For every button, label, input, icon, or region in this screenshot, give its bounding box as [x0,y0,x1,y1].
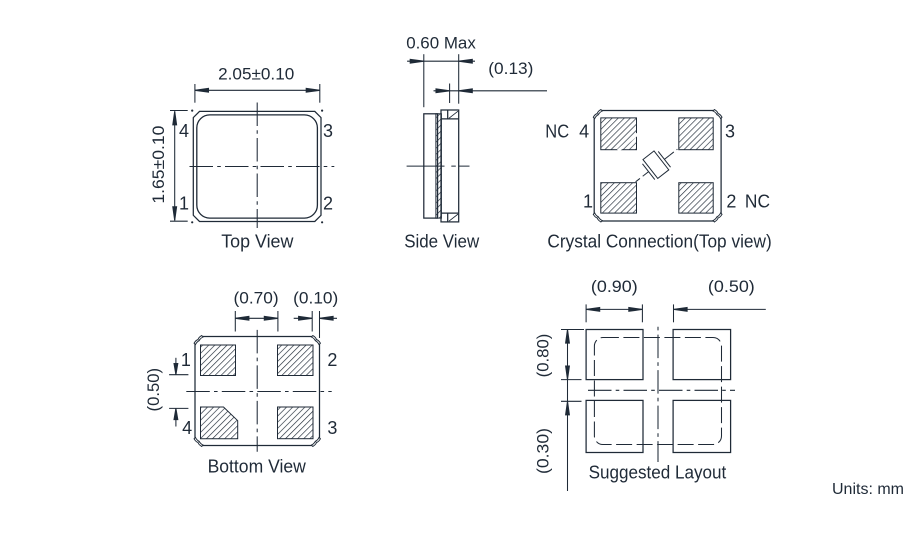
svg-text:4: 4 [579,121,589,141]
svg-text:4: 4 [179,121,189,141]
svg-text:3: 3 [323,121,333,141]
svg-text:Top View: Top View [221,231,294,251]
svg-text:(0.50): (0.50) [708,277,755,296]
svg-text:Suggested Layout: Suggested Layout [589,463,727,483]
svg-text:4: 4 [182,418,192,438]
svg-text:NC: NC [745,192,770,212]
svg-text:2: 2 [726,192,736,212]
svg-text:3: 3 [725,121,735,141]
svg-text:(0.13): (0.13) [488,59,533,78]
svg-text:(0.70): (0.70) [234,288,279,307]
svg-text:1: 1 [181,350,191,370]
svg-text:3: 3 [327,418,337,438]
svg-text:1: 1 [583,192,593,212]
svg-text:Units: mm: Units: mm [832,481,904,498]
svg-text:(0.80): (0.80) [533,334,552,378]
svg-text:1: 1 [179,193,189,213]
svg-text:(0.30): (0.30) [533,428,552,474]
svg-text:NC: NC [545,121,569,141]
svg-text:(0.50): (0.50) [144,368,163,412]
svg-text:(0.10): (0.10) [293,288,338,307]
svg-text:Side View: Side View [404,231,480,251]
svg-text:Crystal Connection(Top view): Crystal Connection(Top view) [547,231,771,251]
svg-text:(0.90): (0.90) [591,277,638,296]
svg-text:1.65±0.10: 1.65±0.10 [149,126,168,204]
svg-text:2.05±0.10: 2.05±0.10 [218,64,294,83]
svg-text:2: 2 [327,350,337,370]
svg-text:2: 2 [323,193,333,213]
svg-text:0.60 Max: 0.60 Max [406,34,476,53]
svg-text:Bottom View: Bottom View [208,457,307,477]
